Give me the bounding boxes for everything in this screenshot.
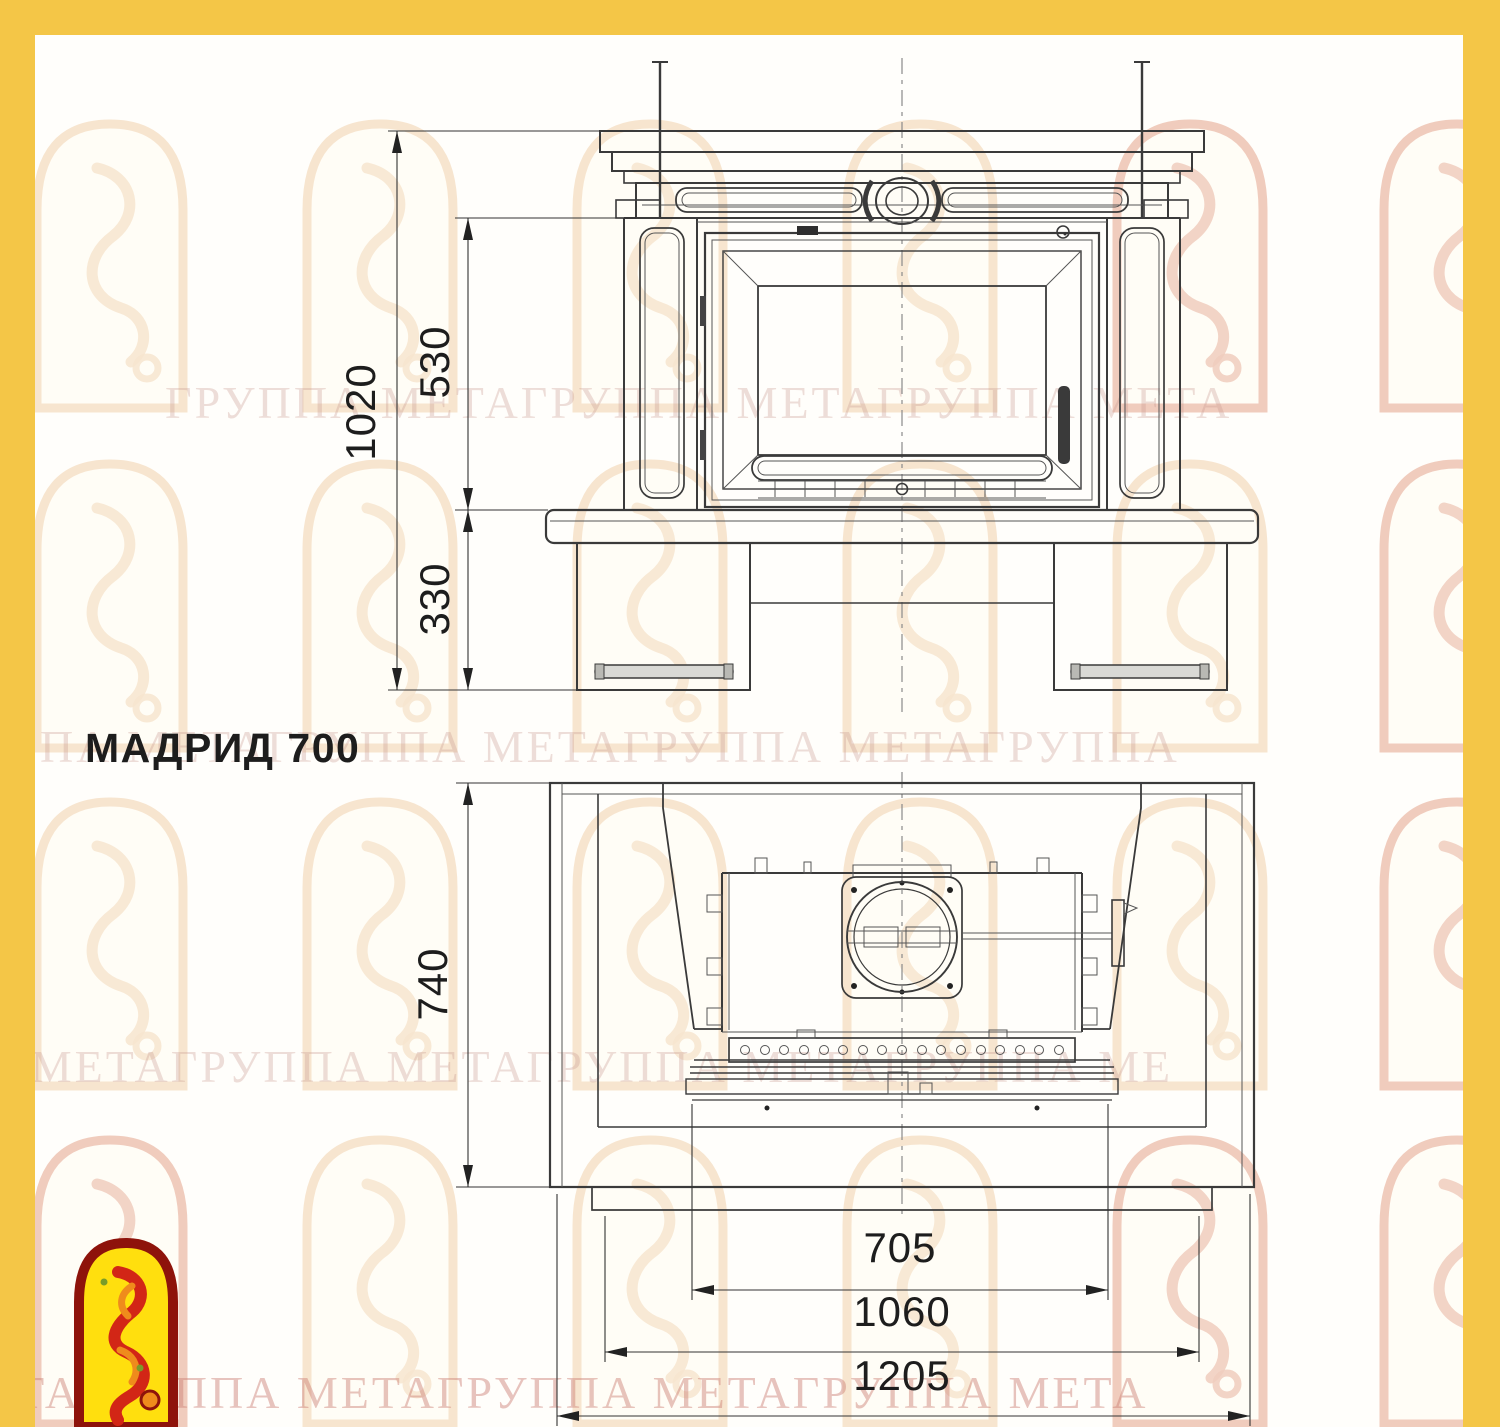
dim-firebox-width: 705 xyxy=(863,1224,936,1271)
dim-opening-height: 530 xyxy=(411,325,458,398)
dim-insert-width: 1060 xyxy=(853,1288,950,1335)
page: ГРУППА МЕТАГРУППА МЕТАГРУППА МЕТА ПА МЕТ… xyxy=(0,0,1500,1427)
watermark-arch-icon xyxy=(37,464,183,748)
watermark-arch-icon xyxy=(37,124,183,408)
watermark-arch-icon xyxy=(847,124,993,408)
door-hinge-bottom xyxy=(700,430,706,460)
dim-overall-width: 1205 xyxy=(853,1352,950,1399)
dim-overall-height: 1020 xyxy=(337,363,384,460)
watermark-arch-icon xyxy=(577,464,723,748)
watermark-arch-icon xyxy=(1117,464,1263,748)
dim-depth: 740 xyxy=(409,947,456,1020)
pedestal-vent-left xyxy=(595,664,733,679)
sheet xyxy=(0,0,1500,1427)
door-hinge-top xyxy=(700,296,706,326)
watermark-arch-icon xyxy=(1117,124,1263,408)
pedestal-vent-right xyxy=(1071,664,1209,679)
watermark-arch-icon xyxy=(577,124,723,408)
dim-base-height: 330 xyxy=(411,562,458,635)
door-handle xyxy=(1058,386,1070,464)
damper-knob xyxy=(797,226,818,235)
page-title: МАДРИД 700 xyxy=(85,725,360,771)
meta-group-logo xyxy=(79,1243,173,1427)
watermark-text-row: ГРУППА МЕТАГРУППА МЕТАГРУППА МЕТА xyxy=(165,377,1232,428)
